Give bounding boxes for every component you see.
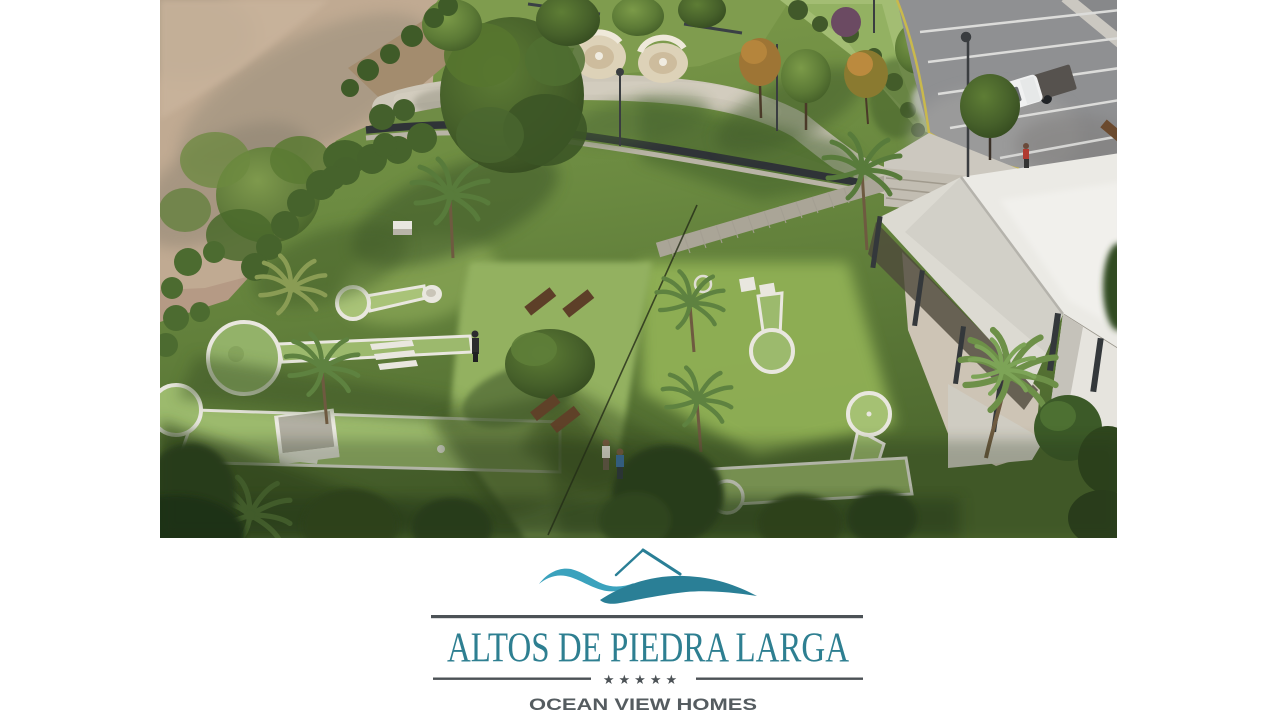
svg-text:ALTOS DE PIEDRA LARGA: ALTOS DE PIEDRA LARGA — [447, 626, 850, 672]
svg-text:★★★★★: ★★★★★ — [603, 672, 681, 687]
svg-text:OCEAN VIEW HOMES: OCEAN VIEW HOMES — [529, 695, 757, 714]
